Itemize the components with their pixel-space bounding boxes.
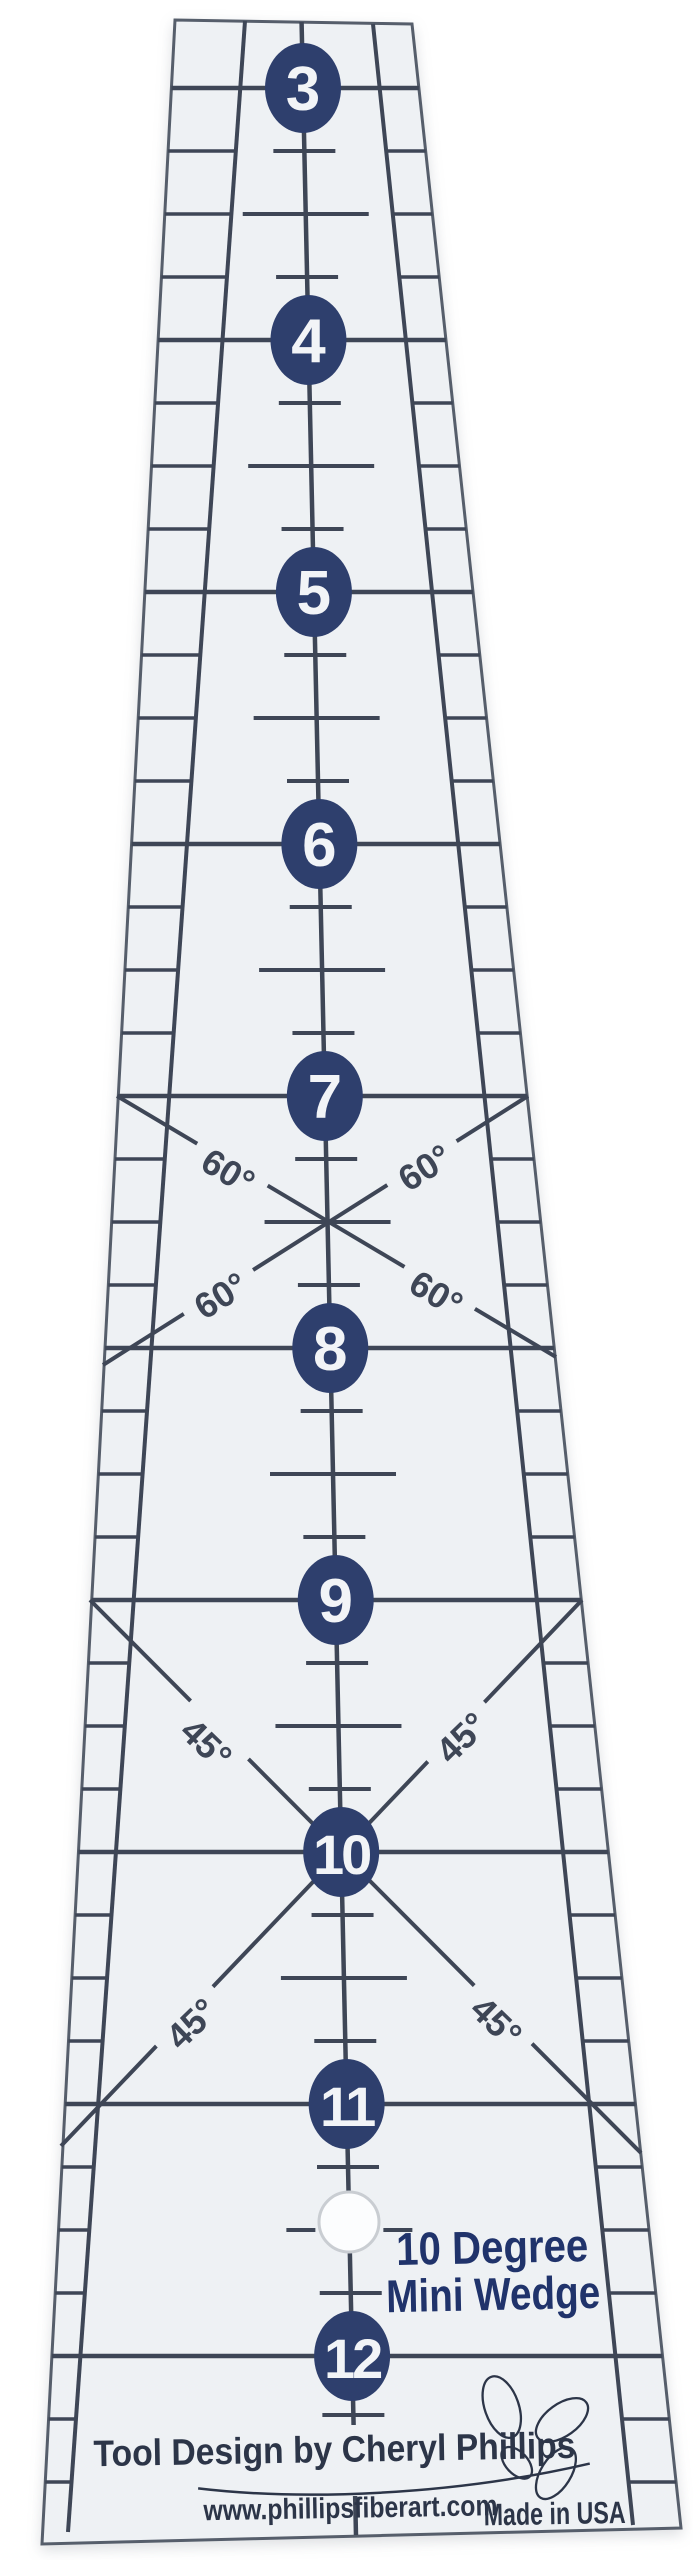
made-in-usa-label: Made in USA — [483, 2495, 626, 2532]
scale-number-8: 8 — [313, 1315, 347, 1384]
scale-number-5: 5 — [297, 559, 331, 628]
website-url: www.phillipsfiberart.com — [202, 2490, 497, 2527]
scale-number-3: 3 — [286, 55, 320, 124]
scale-number-11: 11 — [320, 2075, 375, 2138]
ruler-photo: 60°60°60°60°45°45°45°45°3456789101112 10… — [0, 0, 693, 2560]
scale-number-9: 9 — [318, 1567, 352, 1636]
scale-number-4: 4 — [291, 307, 326, 376]
wedge-ruler: 60°60°60°60°45°45°45°45°3456789101112 10… — [0, 0, 693, 2560]
scale-number-7: 7 — [308, 1063, 342, 1132]
scale-number-12: 12 — [324, 2327, 381, 2390]
product-name: 10 Degree Mini Wedge — [385, 2219, 601, 2322]
scale-number-6: 6 — [302, 811, 336, 880]
product-name-line2: Mini Wedge — [386, 2266, 601, 2322]
hanging-hole — [319, 2192, 379, 2252]
scale-number-10: 10 — [313, 1823, 370, 1886]
